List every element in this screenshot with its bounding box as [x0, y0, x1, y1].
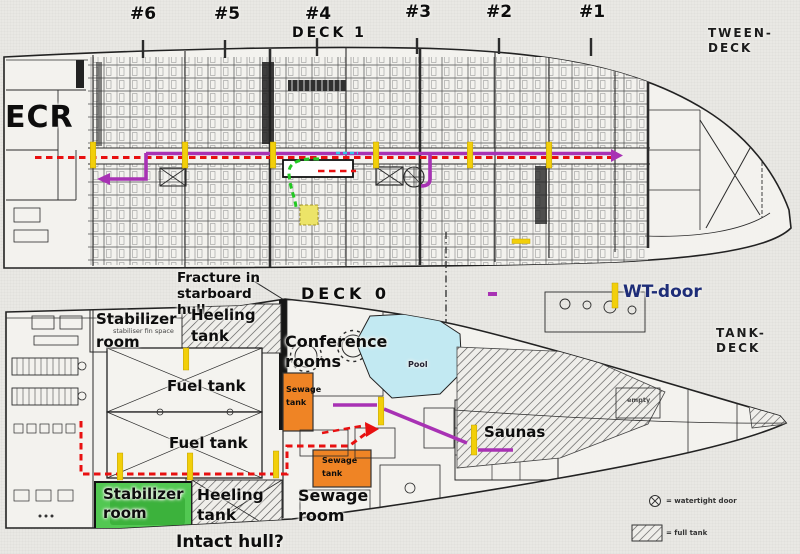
- heeling-tank-top-label: Heeling tank: [191, 305, 257, 347]
- wt-door-marker-icon: [471, 425, 477, 455]
- wt-door-marker-icon: [90, 142, 96, 168]
- stabilizer-room-bottom-label: Stabilizer room: [103, 485, 193, 523]
- saunas-label: Saunas: [484, 423, 545, 442]
- legend: [632, 496, 662, 542]
- tween-deck-label: TWEEN-DECK: [708, 26, 800, 57]
- empty-room-label: empty: [627, 396, 650, 404]
- bow-tank-hatch: [742, 90, 790, 135]
- legend-full-tank: = full tank: [666, 529, 707, 538]
- deck1-title: DECK 1: [292, 25, 367, 43]
- wt-door-marker-icon: [117, 453, 123, 480]
- conference-rooms-label: Conference rooms: [285, 332, 385, 373]
- sewage-tank-lower-label: Sewage tank: [322, 455, 352, 481]
- wt-door-marker-icon: [273, 451, 279, 478]
- frame-label-2: #2: [486, 2, 512, 24]
- wt-door-marker-icon: [467, 142, 473, 168]
- heeling-tank-bottom-label: Heeling tank: [197, 486, 263, 526]
- wt-door-legend-bar-icon: [612, 283, 618, 308]
- ship-deck-plan: #6 #5 #4 #3 #2 #1 DECK 1 TWEEN-DECK ECR …: [0, 0, 800, 553]
- route-mark: [488, 292, 497, 296]
- legend-watertight-door: = watertight door: [666, 497, 737, 506]
- stabilizer-fin-space-label: stabiliser fin space: [113, 327, 174, 335]
- frame-label-5: #5: [214, 4, 240, 26]
- sewage-room-label: Sewage room: [298, 486, 370, 527]
- frame-label-4: #4: [305, 4, 331, 26]
- tank-deck-label: TANK-DECK: [716, 326, 800, 357]
- frame-label-6: #6: [130, 4, 156, 26]
- wt-door-marker-icon: [270, 142, 276, 168]
- wt-door-marker-icon: [378, 397, 384, 425]
- pool-label: Pool: [408, 360, 428, 370]
- sewage-tank-upper-label: Sewage tank: [286, 384, 312, 410]
- deck-plan-drawing: [0, 0, 800, 553]
- ecr-label: ECR: [5, 99, 74, 137]
- wt-door-marker-icon: [187, 453, 193, 480]
- intact-hull-label: Intact hull?: [176, 532, 284, 554]
- frame-label-1: #1: [579, 2, 605, 24]
- wt-door-marker-icon: [546, 142, 552, 168]
- wt-door-marker-icon: [373, 142, 379, 168]
- fuel-tank-lower-label: Fuel tank: [169, 434, 248, 453]
- wt-door-marker-icon: [182, 142, 188, 168]
- highlighted-cabin: [300, 205, 318, 225]
- fuel-tank-upper-label: Fuel tank: [167, 377, 246, 396]
- wt-door-note-label: WT-door: [623, 282, 702, 304]
- watertight-door-icon: [650, 496, 661, 507]
- wt-door-marker-icon: [512, 239, 530, 244]
- frame-label-3: #3: [405, 2, 431, 24]
- full-tank-swatch: [632, 525, 662, 541]
- deck0-title: DECK 0: [301, 284, 390, 304]
